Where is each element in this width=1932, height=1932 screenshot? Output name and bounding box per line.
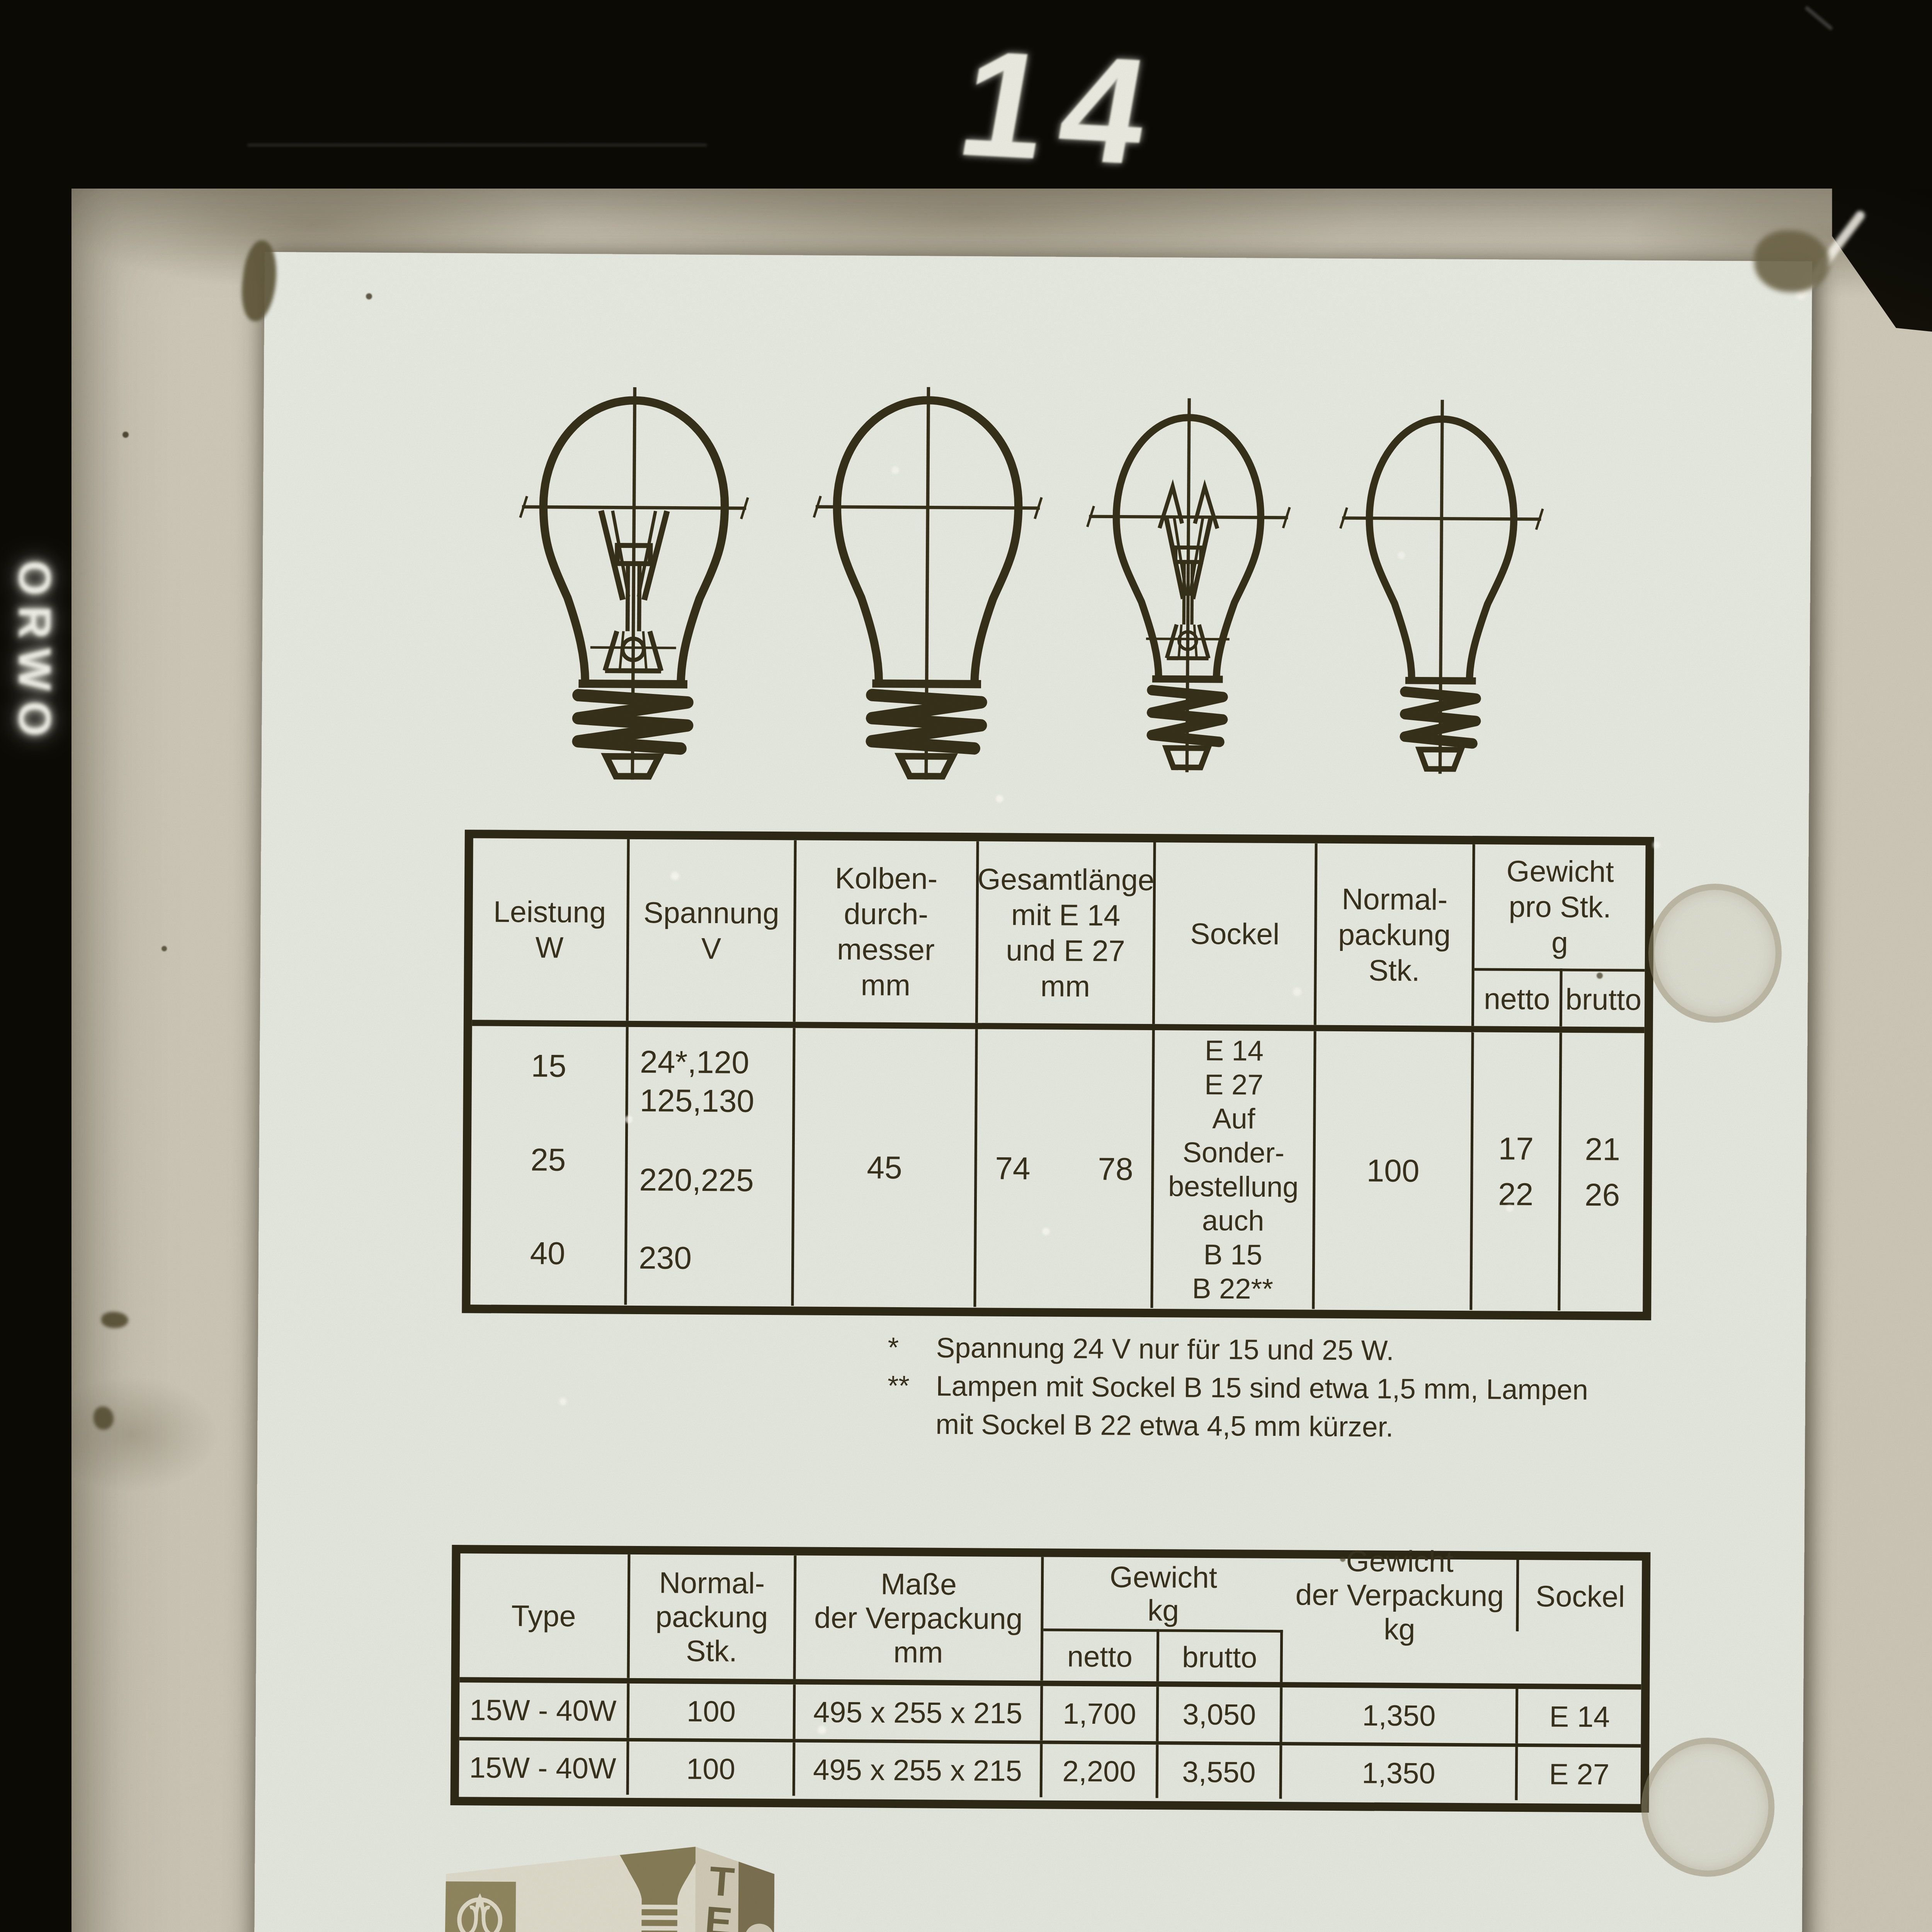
footnote-text: mit Sockel B 22 etwa 4,5 mm kürzer. [935,1405,1393,1446]
header-normalpackung: Normal- packung Stk. [1316,844,1475,1026]
cell-sockel: E 14 [1518,1689,1641,1744]
tesla-roundel-icon [444,1881,516,1932]
cell-spannung: 24*,120 125,130 220,225 230 [627,1027,795,1306]
cell-netto: 1,700 [1043,1686,1159,1741]
footnote-text: Lampen mit Sockel B 15 sind etwa 1,5 mm,… [936,1367,1588,1409]
cell-masse: 495 x 255 x 215 [796,1684,1043,1740]
bulb-drawing-e27-filament [509,385,759,782]
cell-sockel: E 27 [1518,1747,1641,1801]
tesla-box-graphic: TESLA TESLA TESLA TESLA TESLA [430,1844,776,1932]
footnotes: * Spannung 24 V nur für 15 und 25 W. ** … [887,1328,1738,1448]
packing-table-header: Type Normal- packung Stk. Maße der Verpa… [459,1553,1642,1690]
cell-masse: 495 x 255 x 215 [795,1742,1043,1797]
cell-verpackung: 1,350 [1282,1745,1518,1800]
spec-table: Leistung W Spannung V Kolben- durch- mes… [462,830,1654,1320]
cell-verpackung: 1,350 [1282,1687,1518,1743]
box-front-face: TESLA TESLA [430,1844,697,1932]
frame-number-handwriting: 14 [947,17,1255,207]
header-masse: Maße der Verpackung mm [796,1555,1044,1680]
packing-table: Type Normal- packung Stk. Maße der Verpa… [450,1545,1650,1813]
bulb-drawing-e14-filament [1083,396,1294,774]
footnote-marker [887,1405,936,1443]
header-gewicht: Gewicht pro Stk. g [1475,844,1646,969]
header-brutto: brutto [1159,1629,1283,1682]
punch-hole-mark [1641,1737,1775,1877]
footnote-marker: ** [888,1366,936,1405]
cell-leistung: 15 25 40 [470,1026,628,1304]
cell-brutto: 3,050 [1158,1687,1282,1742]
bulb-neck-icon [614,1844,697,1932]
header-netto: netto [1474,968,1563,1026]
film-scan: 14 ORWO Leistung W Span [0,0,1932,1932]
tesla-wordmark-vertical: TESLA [692,1860,742,1932]
header-netto: netto [1043,1628,1159,1681]
cell-type: 15W - 40W [459,1682,630,1738]
header-sockel: Sockel [1519,1560,1642,1632]
dust-mark [101,1312,128,1328]
spec-table-body: 15 25 40 24*,120 125,130 220,225 230 45 [470,1026,1644,1311]
header-normalpackung: Normal- packung Stk. [629,1554,796,1679]
header-spannung: Spannung V [629,839,797,1022]
header-gesamtlaenge: Gesamtlänge mit E 14 und E 27 mm [978,841,1156,1024]
dust-specks-dark [0,0,4,4]
cell-type: 15W - 40W [459,1740,629,1795]
header-type: Type [459,1553,630,1678]
cell-pack: 100 [629,1684,796,1739]
header-sockel: Sockel [1155,842,1318,1025]
cell-gesamtlaenge: 74 78 [976,1029,1155,1308]
spec-table-header: Leistung W Spannung V Kolben- durch- mes… [472,838,1646,1033]
cell-netto: 17 22 [1472,1032,1562,1310]
footnote-marker: * [888,1328,936,1367]
cell-normalpackung: 100 [1315,1031,1474,1310]
film-scratch [1804,5,1833,31]
header-kolbendurchmesser: Kolben- durch- messer mm [796,840,979,1023]
dust-mark [94,1406,114,1430]
header-brutto: brutto [1562,969,1645,1027]
cell-kolbendurchmesser: 45 [794,1028,978,1307]
header-gewicht-verpackung: Gewicht der Verpackung kg [1283,1558,1519,1631]
bulb-drawing-e14-outline [1336,398,1547,776]
cell-pack: 100 [629,1742,796,1796]
bulb-silhouette-icon [738,1846,776,1932]
packing-row: 15W - 40W 100 495 x 255 x 215 2,200 3,55… [459,1740,1641,1801]
datasheet-card: Leistung W Spannung V Kolben- durch- mes… [251,252,1812,1932]
film-stock-brand: ORWO [9,560,61,777]
header-leistung: Leistung W [472,838,630,1020]
box-right-face: TESLA TESLA TESLA [692,1846,776,1932]
film-scratch [247,144,707,146]
bulb-drawing-e27-outline [803,385,1052,782]
cell-netto: 2,200 [1043,1744,1159,1798]
cell-brutto: 21 26 [1560,1033,1644,1311]
packing-row: 15W - 40W 100 495 x 255 x 215 1,700 3,05… [459,1682,1641,1748]
film-edge-brand-area: ORWO [11,560,61,777]
punch-hole-mark [1648,883,1782,1023]
header-gewicht-kg: Gewicht kg [1043,1557,1283,1630]
cell-brutto: 3,550 [1158,1745,1282,1799]
footnote-text: Spannung 24 V nur für 15 und 25 W. [936,1328,1394,1369]
cell-sockel: E 14 E 27 Auf Sonder- bestellung auch B … [1153,1030,1316,1309]
